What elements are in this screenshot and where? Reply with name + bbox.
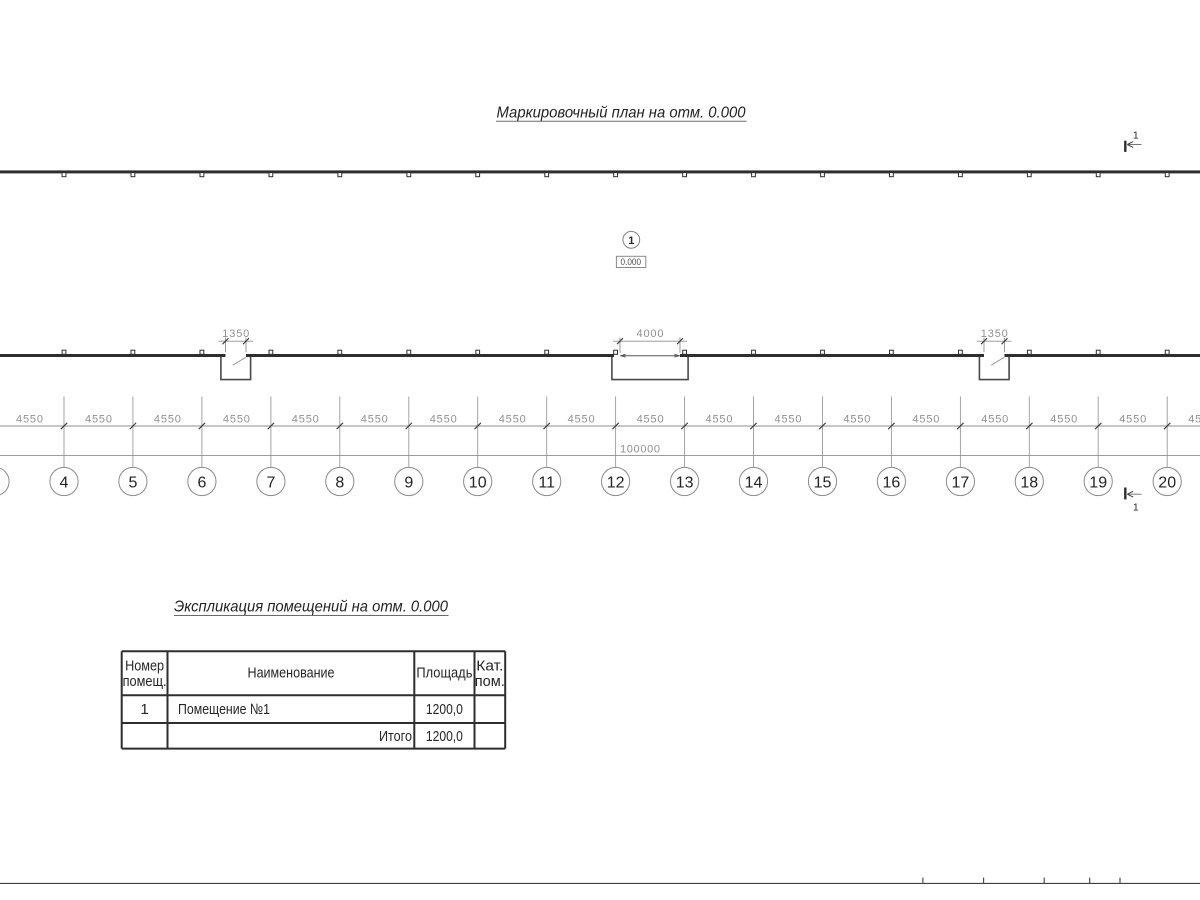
svg-text:14: 14	[745, 474, 763, 491]
svg-text:10: 10	[469, 474, 487, 491]
svg-text:Площадь: Площадь	[416, 664, 472, 681]
svg-text:Итого: Итого	[379, 728, 412, 745]
svg-text:4550: 4550	[843, 413, 870, 425]
svg-text:1350: 1350	[981, 328, 1008, 340]
svg-text:4550: 4550	[706, 413, 733, 425]
svg-text:1: 1	[140, 701, 148, 718]
svg-text:6: 6	[197, 474, 206, 491]
svg-text:4550: 4550	[1050, 413, 1077, 425]
svg-text:1200,0: 1200,0	[426, 728, 463, 745]
svg-text:4550: 4550	[361, 413, 388, 425]
svg-text:Маркировочный план на отм. 0.0: Маркировочный план на отм. 0.000	[497, 105, 746, 122]
svg-text:1: 1	[628, 235, 634, 247]
svg-text:12: 12	[607, 474, 625, 491]
svg-text:8: 8	[335, 474, 344, 491]
svg-text:4550: 4550	[1188, 413, 1200, 425]
svg-text:пом.: пом.	[475, 673, 505, 690]
svg-text:Наименование: Наименование	[248, 664, 335, 681]
svg-text:4550: 4550	[430, 413, 457, 425]
svg-text:20: 20	[1158, 474, 1176, 491]
svg-text:4550: 4550	[912, 413, 939, 425]
svg-text:4550: 4550	[981, 413, 1008, 425]
svg-text:4550: 4550	[568, 413, 595, 425]
svg-text:100000: 100000	[620, 443, 660, 455]
svg-text:помещ.: помещ.	[123, 673, 167, 690]
svg-text:5: 5	[128, 474, 137, 491]
svg-text:4000: 4000	[637, 328, 664, 340]
svg-text:4550: 4550	[223, 413, 250, 425]
svg-text:1: 1	[1133, 130, 1139, 142]
svg-text:4550: 4550	[637, 413, 664, 425]
svg-text:9: 9	[404, 474, 413, 491]
svg-text:Экспликация помещений на отм.: Экспликация помещений на отм. 0.000	[174, 599, 448, 616]
svg-text:1350: 1350	[222, 328, 249, 340]
svg-text:7: 7	[266, 474, 275, 491]
svg-text:17: 17	[952, 474, 970, 491]
svg-text:16: 16	[883, 474, 901, 491]
svg-text:4550: 4550	[499, 413, 526, 425]
svg-text:1200,0: 1200,0	[426, 701, 463, 718]
svg-text:Помещение №1: Помещение №1	[178, 701, 270, 718]
svg-text:0.000: 0.000	[621, 257, 642, 267]
svg-text:13: 13	[676, 474, 694, 491]
svg-text:4550: 4550	[85, 413, 112, 425]
svg-text:19: 19	[1089, 474, 1107, 491]
svg-text:18: 18	[1020, 474, 1038, 491]
svg-text:11: 11	[538, 474, 555, 491]
svg-text:4550: 4550	[1119, 413, 1146, 425]
svg-text:4550: 4550	[16, 413, 43, 425]
svg-text:4550: 4550	[292, 413, 319, 425]
svg-text:1: 1	[1133, 502, 1139, 514]
svg-text:15: 15	[814, 474, 832, 491]
svg-text:4550: 4550	[775, 413, 802, 425]
svg-text:4: 4	[60, 474, 69, 491]
svg-text:4550: 4550	[154, 413, 181, 425]
